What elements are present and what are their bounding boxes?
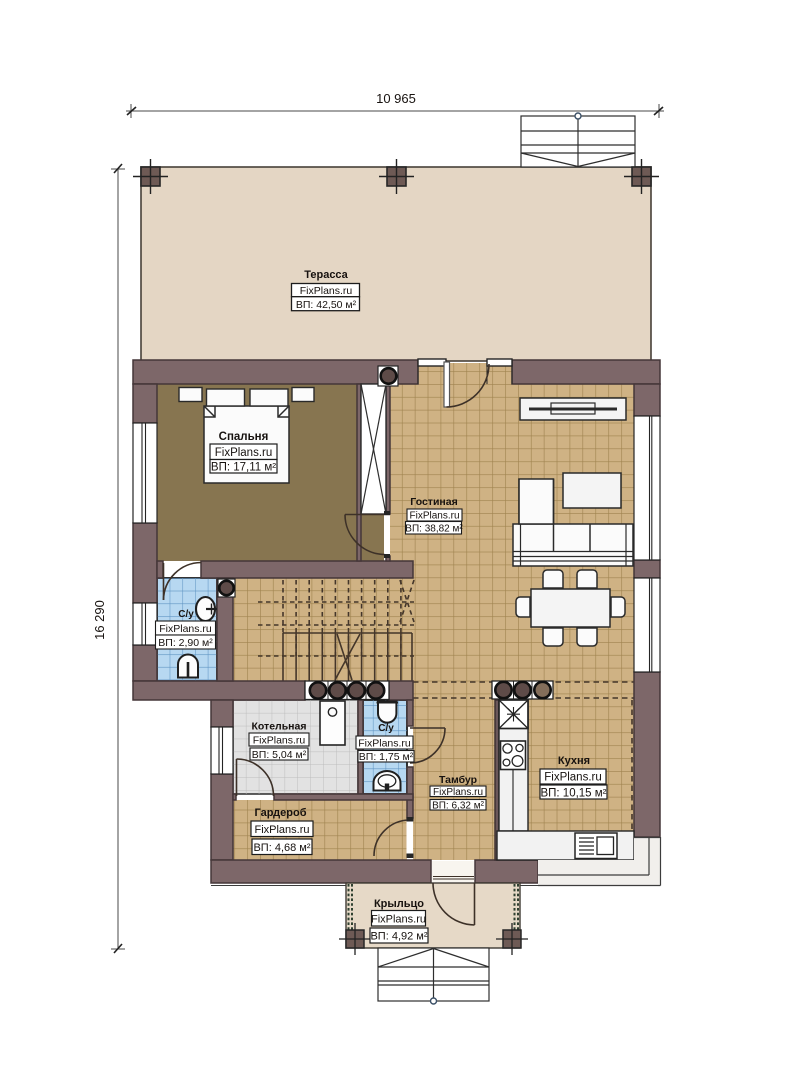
svg-text:ВП: 2,90 м²: ВП: 2,90 м² (158, 637, 213, 649)
svg-text:16 290: 16 290 (92, 600, 107, 640)
svg-text:С/у: С/у (178, 609, 194, 620)
svg-text:ВП: 42,50 м²: ВП: 42,50 м² (296, 299, 357, 311)
svg-text:ВП: 1,75 м²: ВП: 1,75 м² (359, 751, 414, 763)
svg-text:Котельная: Котельная (252, 721, 307, 733)
svg-text:FixPlans.ru: FixPlans.ru (215, 447, 273, 459)
svg-text:FixPlans.ru: FixPlans.ru (159, 623, 212, 635)
svg-text:FixPlans.ru: FixPlans.ru (544, 772, 602, 784)
svg-text:ВП: 10,15 м²: ВП: 10,15 м² (540, 788, 606, 800)
svg-text:С/у: С/у (378, 723, 394, 734)
svg-text:ВП: 5,04 м²: ВП: 5,04 м² (252, 749, 307, 761)
svg-text:Кухня: Кухня (558, 755, 590, 767)
svg-text:FixPlans.ru: FixPlans.ru (253, 735, 306, 747)
svg-text:FixPlans.ru: FixPlans.ru (409, 511, 459, 522)
svg-text:Гардероб: Гардероб (255, 807, 307, 819)
svg-text:Спальня: Спальня (219, 431, 269, 443)
svg-text:FixPlans.ru: FixPlans.ru (254, 824, 309, 836)
svg-text:ВП: 17,11 м²: ВП: 17,11 м² (211, 462, 276, 474)
svg-text:10 965: 10 965 (376, 91, 416, 106)
svg-text:ВП: 6,32 м²: ВП: 6,32 м² (432, 801, 485, 812)
svg-text:FixPlans.ru: FixPlans.ru (433, 787, 483, 798)
svg-text:Крыльцо: Крыльцо (374, 898, 424, 910)
svg-text:ВП: 4,92 м²: ВП: 4,92 м² (370, 931, 427, 943)
svg-text:ВП: 4,68 м²: ВП: 4,68 м² (253, 842, 310, 854)
svg-text:ВП: 38,82 м²: ВП: 38,82 м² (405, 524, 463, 535)
svg-text:Терасса: Терасса (304, 269, 348, 281)
svg-text:FixPlans.ru: FixPlans.ru (358, 738, 411, 750)
svg-text:FixPlans.ru: FixPlans.ru (371, 914, 426, 926)
svg-text:Гостиная: Гостиная (410, 496, 457, 508)
svg-text:Тамбур: Тамбур (439, 774, 477, 786)
svg-text:FixPlans.ru: FixPlans.ru (300, 285, 353, 297)
